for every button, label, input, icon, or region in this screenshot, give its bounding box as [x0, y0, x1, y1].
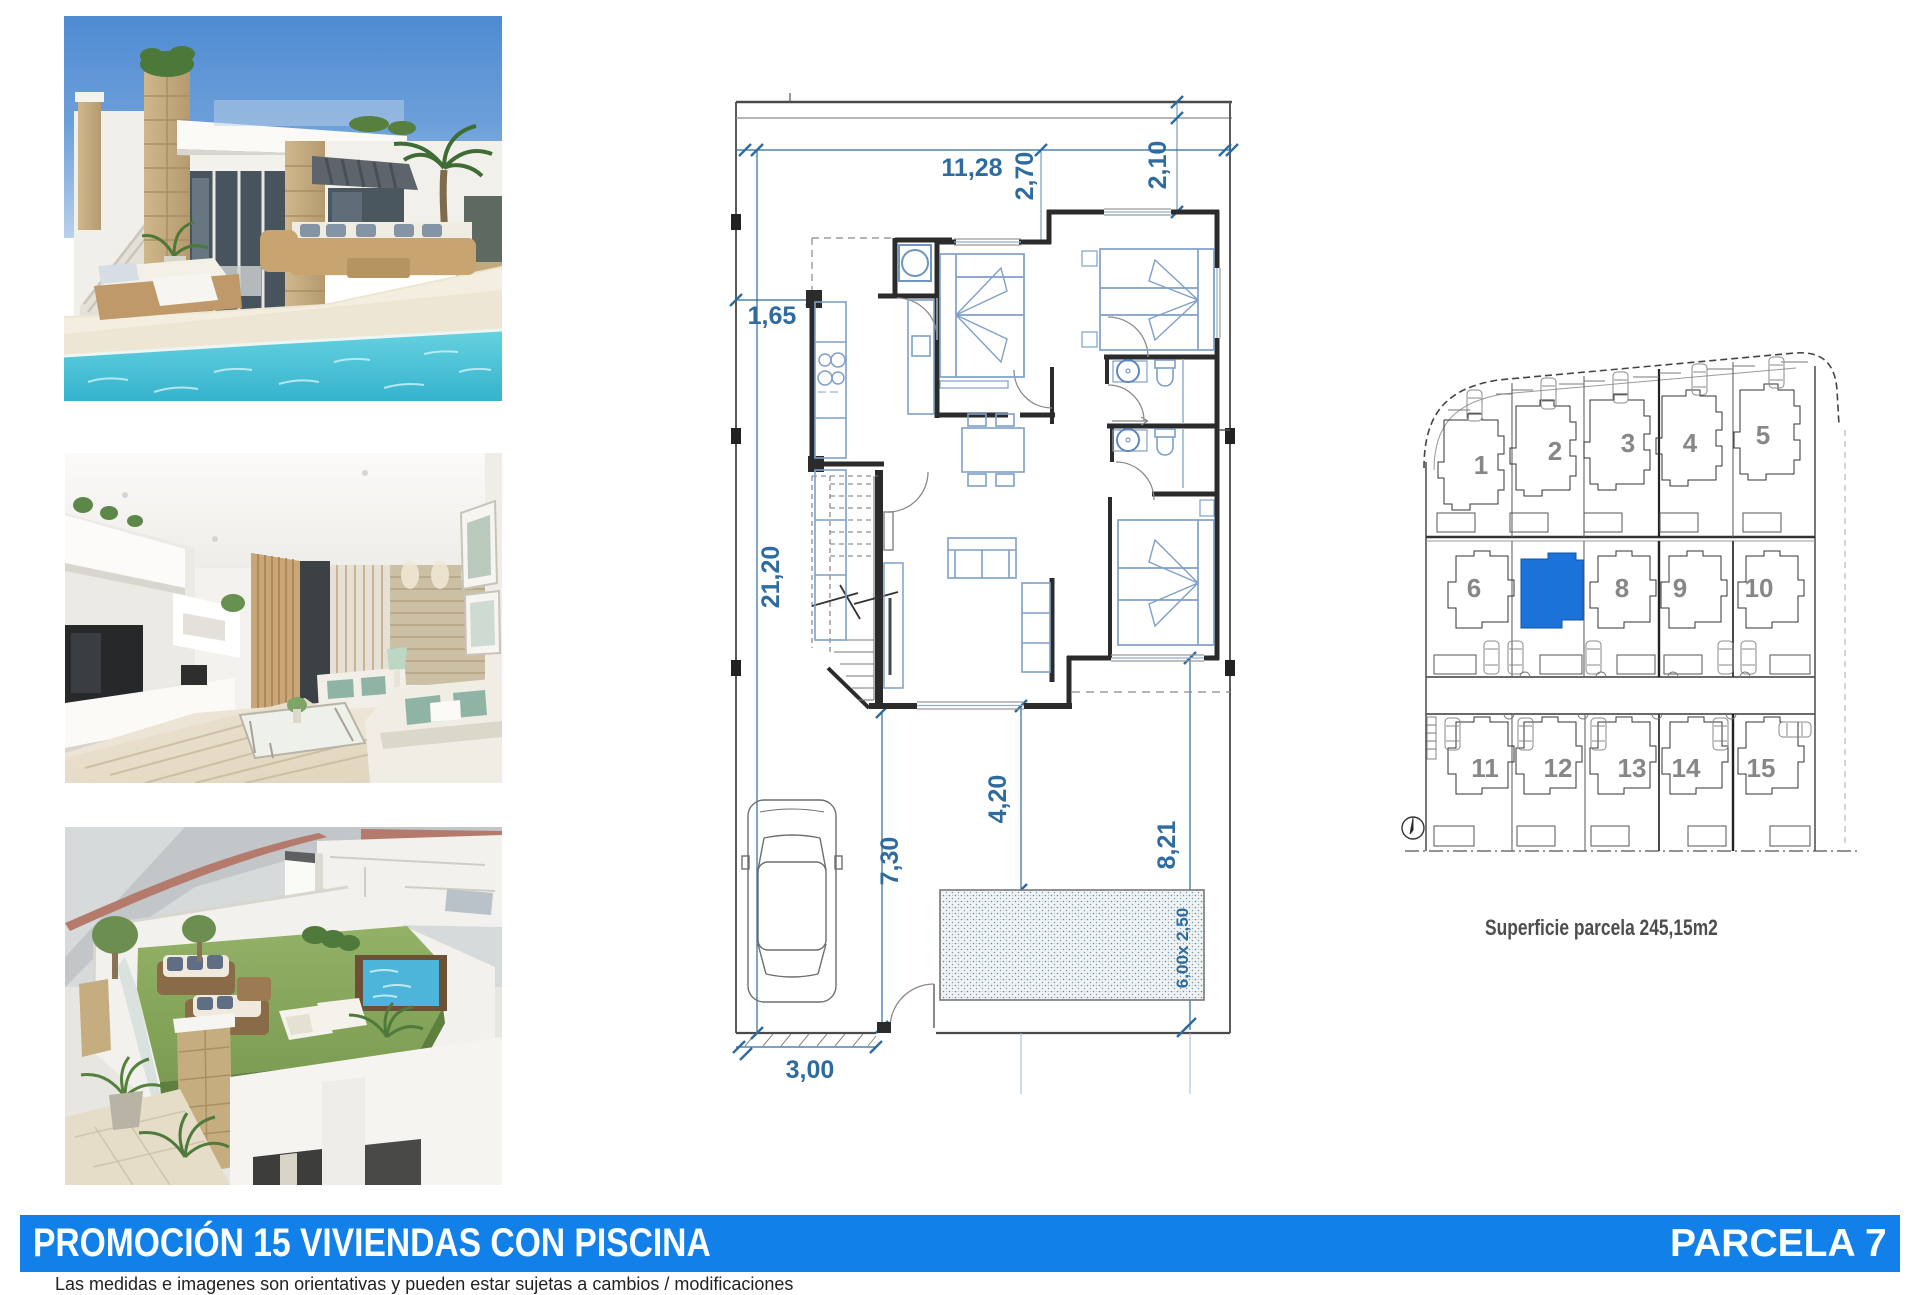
svg-text:4,20: 4,20: [984, 775, 1012, 824]
svg-text:4: 4: [1683, 428, 1698, 458]
svg-text:14: 14: [1672, 753, 1701, 783]
svg-text:11: 11: [1471, 753, 1499, 783]
svg-text:5: 5: [1756, 420, 1770, 450]
svg-text:13: 13: [1618, 753, 1647, 783]
svg-text:2,10: 2,10: [1144, 141, 1172, 190]
svg-text:8,21: 8,21: [1153, 821, 1181, 870]
svg-text:3,00: 3,00: [786, 1056, 835, 1084]
svg-text:1: 1: [1474, 450, 1488, 480]
svg-text:6: 6: [1467, 573, 1481, 603]
svg-text:3: 3: [1621, 428, 1635, 458]
svg-text:2: 2: [1548, 436, 1562, 466]
svg-text:21,20: 21,20: [757, 546, 785, 609]
svg-text:2,70: 2,70: [1011, 152, 1039, 201]
svg-text:12: 12: [1544, 753, 1573, 783]
svg-text:1,65: 1,65: [748, 302, 797, 330]
svg-text:11,28: 11,28: [941, 154, 1002, 182]
svg-text:6,00x 2,50: 6,00x 2,50: [1173, 908, 1192, 988]
svg-text:9: 9: [1673, 573, 1687, 603]
svg-text:7,30: 7,30: [876, 837, 904, 886]
svg-text:10: 10: [1745, 573, 1774, 603]
svg-text:8: 8: [1615, 573, 1629, 603]
svg-text:15: 15: [1747, 753, 1776, 783]
